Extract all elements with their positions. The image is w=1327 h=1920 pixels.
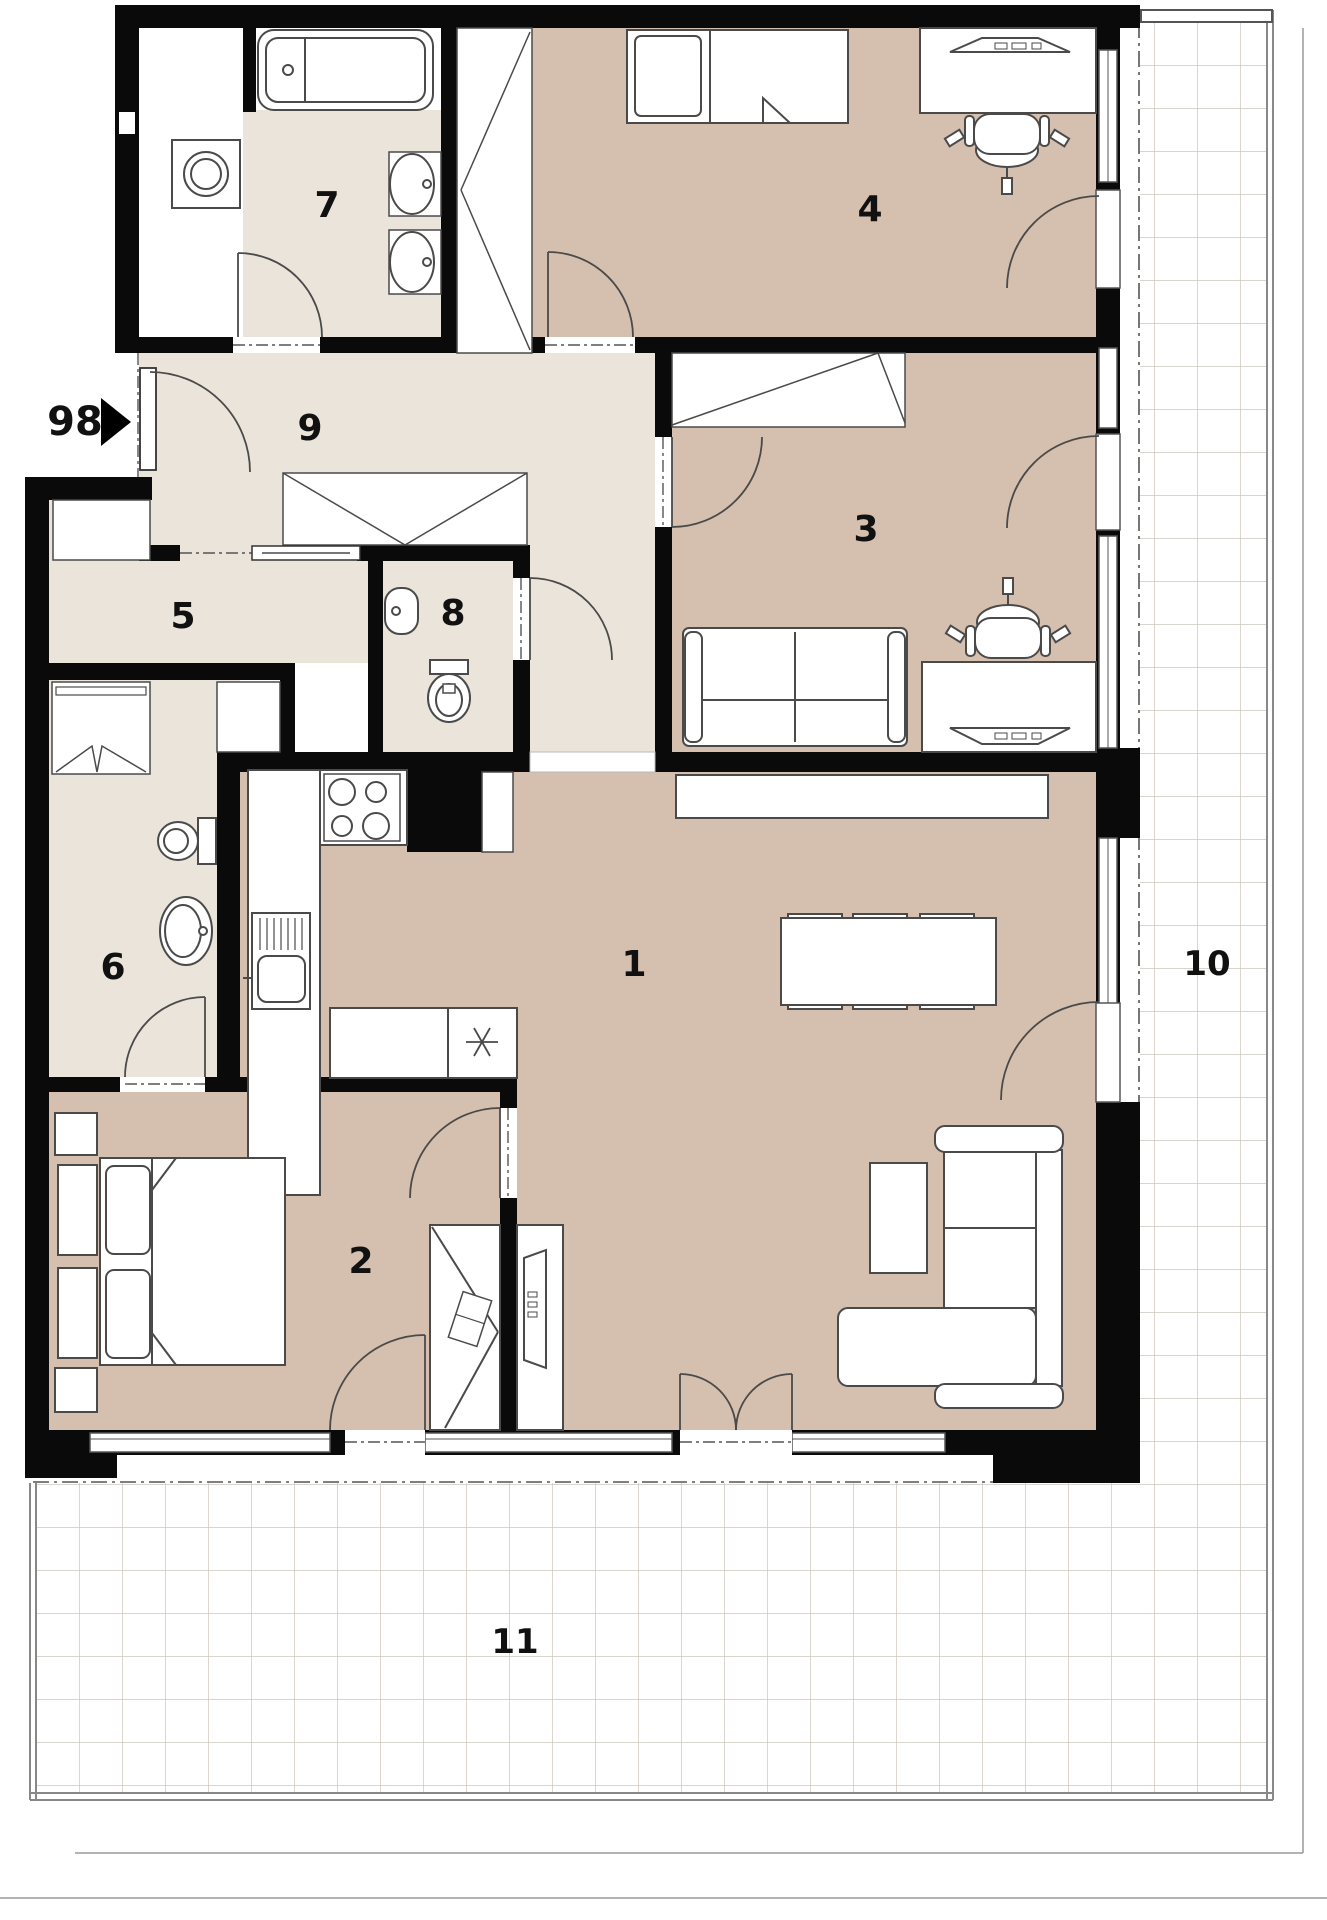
sliding-door	[252, 546, 360, 560]
sideboard	[676, 775, 1048, 818]
entrance-arrow-icon	[101, 398, 131, 446]
room-label-3: 3	[853, 509, 878, 550]
toilet	[158, 818, 216, 864]
room-label-7: 7	[314, 185, 339, 226]
room-label-2: 2	[348, 1241, 373, 1282]
toilet	[428, 660, 470, 722]
sink	[160, 897, 212, 965]
tall-wardrobe	[457, 28, 532, 353]
kitchen-sink	[243, 913, 310, 1009]
room-label-8: 8	[440, 593, 465, 634]
entry-niche	[53, 500, 150, 560]
tv	[524, 1250, 546, 1368]
floor-plan: 98 1 2 3 4 5 6 7 8 9 10 11	[0, 0, 1327, 1920]
washing-machine	[172, 140, 240, 208]
desk	[922, 662, 1096, 752]
room-label-6: 6	[100, 947, 125, 988]
balcony-top-railing-bar	[1141, 10, 1272, 22]
sink	[389, 152, 441, 216]
hall-passage-floor	[530, 545, 655, 772]
room-label-1: 1	[621, 944, 646, 985]
tv-console	[517, 1225, 563, 1430]
nightstand	[55, 1368, 97, 1412]
dining-table	[781, 918, 996, 1005]
small-window	[119, 112, 135, 134]
cabinet	[58, 1268, 97, 1358]
wardrobe	[672, 353, 905, 427]
sofa-2seat	[683, 628, 907, 746]
vanity-desk	[430, 1225, 500, 1430]
south-windows	[90, 1430, 945, 1455]
terrace-tile-grid	[36, 1483, 1267, 1793]
shaft	[482, 772, 513, 852]
entrance-marker: 98	[47, 398, 131, 446]
nightstand	[55, 1113, 97, 1155]
desk	[920, 28, 1096, 113]
east-windows	[1096, 50, 1120, 1102]
room-label-10: 10	[1183, 944, 1230, 984]
coffee-table	[870, 1163, 927, 1273]
single-bed	[627, 30, 848, 123]
double-bed	[100, 1158, 285, 1365]
floor-plan-page: 98 1 2 3 4 5 6 7 8 9 10 11	[0, 0, 1327, 1920]
passage-threshold	[530, 752, 655, 772]
island-counter	[330, 1008, 517, 1078]
balcony-tile-grid	[1140, 22, 1267, 1483]
room-label-11: 11	[491, 1622, 538, 1662]
shaft-niche	[217, 682, 280, 752]
room-label-4: 4	[857, 189, 882, 230]
sink	[385, 588, 418, 634]
dining-set	[781, 914, 996, 1009]
room-label-9: 9	[297, 408, 322, 449]
cabinet	[58, 1165, 97, 1255]
unit-number: 98	[47, 399, 103, 445]
room-label-5: 5	[170, 596, 195, 637]
open-closet	[52, 682, 150, 774]
sink	[389, 230, 441, 294]
